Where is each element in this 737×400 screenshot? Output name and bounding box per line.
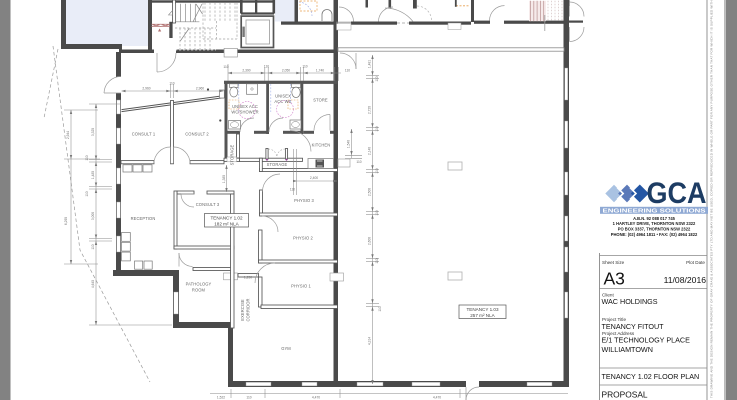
svg-text:WILLIAMTOWN: WILLIAMTOWN — [602, 345, 653, 354]
svg-text:TENANCY 1.02: TENANCY 1.02 — [210, 216, 243, 221]
svg-text:2,600: 2,600 — [368, 237, 372, 245]
svg-text:2,960: 2,960 — [196, 87, 204, 91]
svg-text:PATHOLOGY: PATHOLOGY — [186, 282, 212, 287]
svg-text:EXERCISE: EXERCISE — [240, 299, 245, 321]
svg-text:CONSULT 3: CONSULT 3 — [196, 202, 220, 207]
svg-text:2,390: 2,390 — [242, 69, 250, 73]
svg-text:110: 110 — [375, 168, 379, 173]
svg-text:110: 110 — [378, 306, 382, 311]
svg-text:PHYSIO 1: PHYSIO 1 — [291, 284, 311, 289]
svg-text:110: 110 — [375, 126, 379, 131]
svg-text:4,470: 4,470 — [433, 395, 441, 399]
svg-text:3,325: 3,325 — [91, 128, 95, 136]
svg-text:2,960: 2,960 — [142, 87, 150, 91]
svg-text:UNISEX: UNISEX — [275, 94, 291, 99]
svg-text:STORAGE: STORAGE — [267, 162, 288, 167]
svg-text:2,050: 2,050 — [282, 69, 290, 73]
svg-text:257 m² NLA: 257 m² NLA — [470, 313, 495, 318]
svg-text:WAC HOLDINGS: WAC HOLDINGS — [602, 297, 658, 306]
svg-text:182 m² NLA: 182 m² NLA — [214, 222, 239, 227]
svg-text:TENANCY 1.03: TENANCY 1.03 — [466, 307, 499, 312]
svg-text:CONSULT 1: CONSULT 1 — [132, 132, 156, 137]
svg-text:110: 110 — [85, 155, 89, 160]
svg-text:CORRIDOR: CORRIDOR — [246, 298, 251, 321]
svg-text:A3: A3 — [604, 269, 625, 289]
svg-text:STORE: STORE — [313, 98, 328, 103]
svg-text:RECEPTION: RECEPTION — [131, 216, 156, 221]
svg-text:4,314: 4,314 — [368, 337, 372, 345]
svg-text:Plot Date: Plot Date — [686, 260, 705, 265]
svg-text:2,944: 2,944 — [66, 131, 70, 139]
svg-text:WC/SHOWER: WC/SHOWER — [231, 110, 258, 115]
svg-text:GYM: GYM — [281, 346, 291, 351]
svg-text:1,481: 1,481 — [368, 60, 372, 68]
svg-text:4,645: 4,645 — [91, 280, 95, 288]
svg-text:11/08/2016: 11/08/2016 — [664, 275, 707, 285]
svg-text:Sheet Size: Sheet Size — [602, 260, 625, 265]
svg-text:110: 110 — [290, 188, 295, 192]
svg-text:110: 110 — [345, 69, 350, 73]
svg-text:6,295: 6,295 — [64, 217, 68, 225]
svg-text:PHYSIO 2: PHYSIO 2 — [293, 236, 313, 241]
svg-text:1,740: 1,740 — [316, 69, 324, 73]
svg-text:4,470: 4,470 — [312, 395, 320, 399]
svg-text:GCA: GCA — [647, 177, 707, 210]
svg-text:TENANCY FITOUT: TENANCY FITOUT — [602, 322, 665, 331]
svg-text:PHONE: (02) 4964 1811 • FAX: (: PHONE: (02) 4964 1811 • FAX: (02) 4964 1… — [611, 232, 698, 237]
svg-text:110: 110 — [223, 65, 228, 69]
svg-text:110: 110 — [264, 65, 269, 69]
svg-text:2,720: 2,720 — [368, 106, 372, 114]
svg-text:KITCHEN: KITCHEN — [312, 143, 331, 148]
svg-text:PHYSIO 3: PHYSIO 3 — [294, 198, 314, 203]
svg-text:1,385: 1,385 — [222, 175, 226, 183]
svg-text:1,485: 1,485 — [91, 171, 95, 179]
svg-text:110: 110 — [375, 76, 379, 81]
svg-text:110: 110 — [375, 258, 379, 263]
svg-text:110: 110 — [169, 82, 174, 86]
svg-text:PROPOSAL: PROPOSAL — [602, 390, 648, 400]
svg-text:PO BOX 3337, THORNTON NSW 2322: PO BOX 3337, THORNTON NSW 2322 — [618, 227, 691, 232]
svg-text:1 HARTLEY DRIVE, THORNTON NSW: 1 HARTLEY DRIVE, THORNTON NSW 2322 — [613, 221, 696, 226]
svg-text:1,540: 1,540 — [347, 140, 351, 148]
svg-text:2,500: 2,500 — [368, 188, 372, 196]
svg-text:A.B.N. 92 088 017 745: A.B.N. 92 088 017 745 — [633, 216, 676, 221]
svg-text:STORAGE: STORAGE — [230, 145, 235, 166]
svg-text:ROOM: ROOM — [192, 288, 206, 293]
svg-text:2,400: 2,400 — [310, 176, 318, 180]
svg-text:CONSULT 2: CONSULT 2 — [185, 132, 209, 137]
svg-text:ENGINEERING SOLUTIONS: ENGINEERING SOLUTIONS — [603, 209, 706, 215]
svg-text:110: 110 — [85, 191, 89, 196]
svg-text:TENANCY 1.02 FLOOR PLAN: TENANCY 1.02 FLOOR PLAN — [602, 372, 700, 381]
svg-text:110: 110 — [302, 65, 307, 69]
svg-text:1,290: 1,290 — [244, 276, 252, 280]
svg-text:110: 110 — [246, 395, 251, 399]
svg-text:2,140: 2,140 — [368, 147, 372, 155]
svg-text:ACC WC: ACC WC — [274, 99, 291, 104]
svg-text:THIS DRAWING AND THE DESIGN RE: THIS DRAWING AND THE DESIGN REMAIN THE P… — [710, 0, 714, 398]
svg-text:UNISEX ACC: UNISEX ACC — [232, 104, 258, 109]
svg-text:110: 110 — [356, 160, 361, 164]
svg-text:110: 110 — [91, 244, 95, 249]
svg-text:110: 110 — [375, 210, 379, 215]
svg-text:3,000: 3,000 — [91, 212, 95, 220]
svg-text:E/1 TECHNOLOGY PLACE: E/1 TECHNOLOGY PLACE — [602, 336, 691, 345]
svg-text:1,522: 1,522 — [217, 395, 225, 399]
